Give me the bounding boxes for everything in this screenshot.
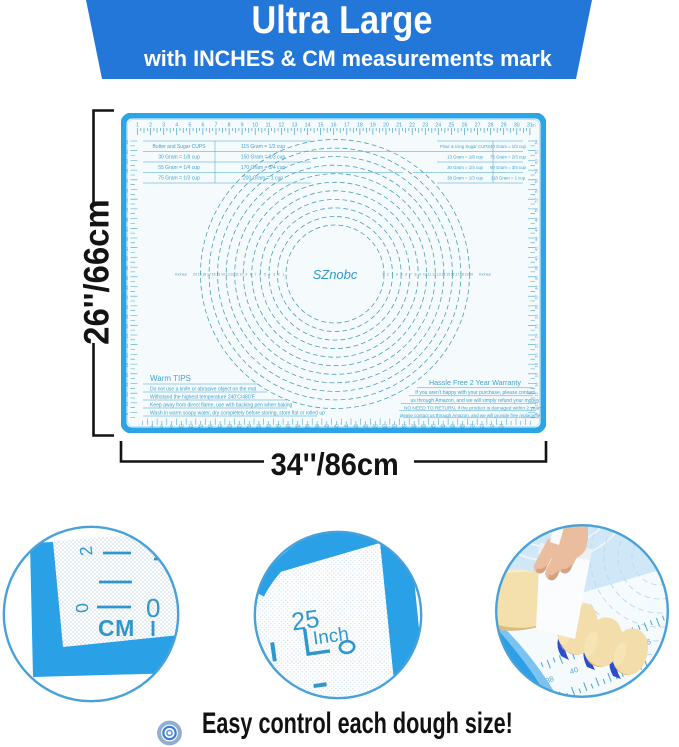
svg-text:36: 36 [520, 683, 531, 694]
svg-text:49: 49 [646, 672, 657, 683]
svg-text:CM: CM [98, 615, 135, 641]
svg-text:34: 34 [496, 693, 507, 699]
svg-text:2: 2 [76, 545, 97, 557]
svg-text:0: 0 [146, 593, 160, 623]
